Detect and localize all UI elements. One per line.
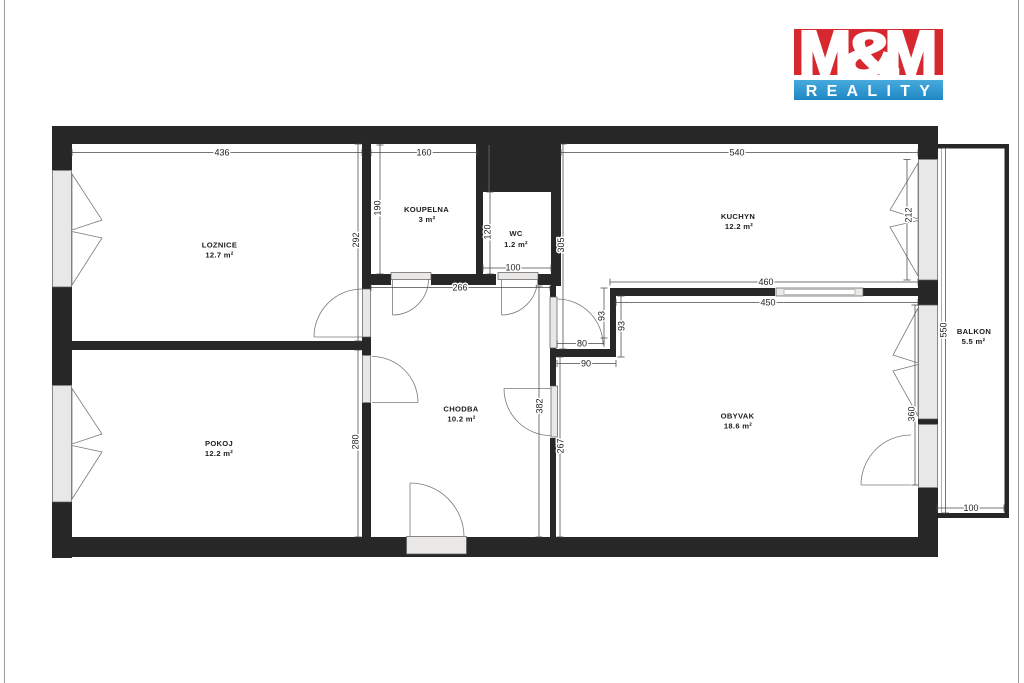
svg-text:93: 93	[617, 321, 627, 331]
svg-text:BALKON: BALKON	[957, 327, 991, 336]
svg-text:100: 100	[505, 263, 520, 273]
svg-text:12.2 m²: 12.2 m²	[725, 222, 753, 231]
svg-text:&: &	[840, 20, 900, 90]
svg-text:10.2 m²: 10.2 m²	[447, 415, 475, 424]
svg-text:160: 160	[416, 148, 431, 158]
svg-text:KOUPELNA: KOUPELNA	[404, 205, 449, 214]
svg-text:18.6 m²: 18.6 m²	[724, 422, 752, 431]
svg-text:266: 266	[452, 283, 467, 293]
svg-text:80: 80	[577, 339, 587, 349]
svg-text:460: 460	[758, 277, 773, 287]
svg-text:360: 360	[907, 406, 917, 421]
svg-text:KUCHYN: KUCHYN	[721, 212, 755, 221]
svg-text:540: 540	[729, 148, 744, 158]
svg-text:90: 90	[581, 359, 591, 369]
svg-text:267: 267	[556, 438, 566, 453]
svg-text:5.5 m²: 5.5 m²	[962, 337, 986, 346]
svg-text:WC: WC	[509, 229, 522, 238]
svg-text:550: 550	[939, 322, 949, 337]
svg-text:93: 93	[597, 311, 607, 321]
svg-text:100: 100	[963, 503, 978, 513]
svg-text:REALITY: REALITY	[806, 83, 940, 100]
svg-text:292: 292	[351, 232, 361, 247]
svg-text:CHODBA: CHODBA	[443, 405, 478, 414]
svg-text:280: 280	[351, 434, 361, 449]
svg-text:436: 436	[214, 148, 229, 158]
svg-text:120: 120	[483, 224, 493, 239]
svg-text:POKOJ: POKOJ	[205, 439, 233, 448]
svg-text:212: 212	[904, 207, 914, 222]
svg-text:190: 190	[373, 200, 383, 215]
svg-text:1.2 m²: 1.2 m²	[504, 240, 528, 249]
svg-text:305: 305	[556, 237, 566, 252]
svg-text:12.2 m²: 12.2 m²	[205, 449, 233, 458]
svg-text:382: 382	[535, 398, 545, 413]
svg-text:12.7 m²: 12.7 m²	[205, 251, 233, 260]
svg-text:LOZNICE: LOZNICE	[202, 241, 237, 250]
svg-text:3 m²: 3 m²	[419, 215, 436, 224]
svg-text:OBYVAK: OBYVAK	[721, 412, 755, 421]
svg-text:450: 450	[760, 298, 775, 308]
